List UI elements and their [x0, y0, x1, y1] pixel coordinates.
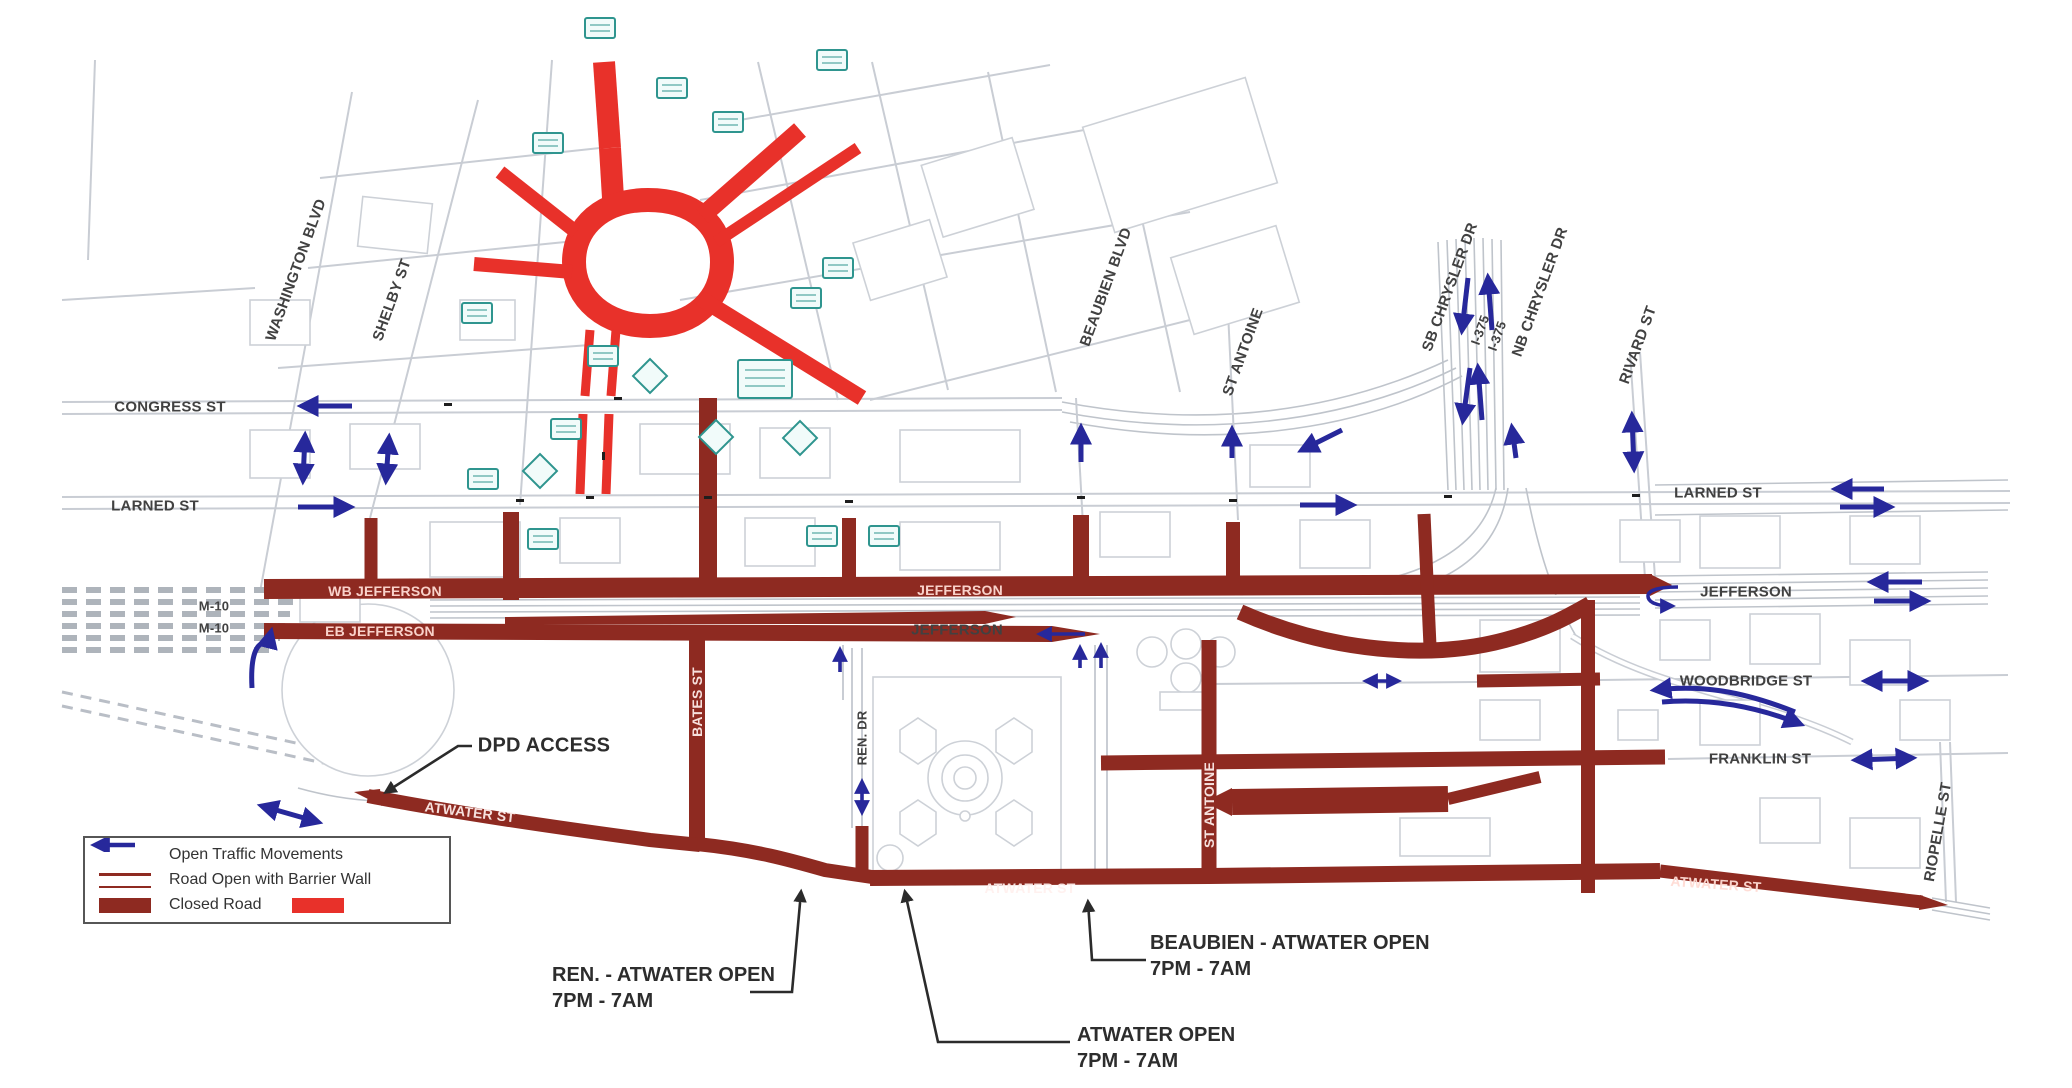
callout-line: 7PM - 7AM — [1150, 956, 1430, 982]
callout-line: BEAUBIEN - ATWATER OPEN — [1150, 930, 1430, 956]
sign-icon — [738, 360, 792, 398]
map-legend: Open Traffic Movements Road Open with Ba… — [83, 836, 451, 924]
sign-icon — [807, 526, 837, 546]
street-label-larned-st-right: LARNED ST — [1674, 485, 1762, 502]
sign-icon — [713, 112, 743, 132]
street-label-wb-jefferson: WB JEFFERSON — [328, 583, 442, 599]
street-label-larned-st-left: LARNED ST — [111, 498, 199, 515]
sign-icon — [528, 529, 558, 549]
callout-atwater-open: ATWATER OPEN 7PM - 7AM — [1077, 1022, 1235, 1074]
legend-row-barrier-wall: Road Open with Barrier Wall — [97, 871, 437, 889]
street-label-woodbridge-st: WOODBRIDGE ST — [1680, 673, 1813, 690]
street-label-congress-st: CONGRESS ST — [114, 399, 225, 416]
sign-icon — [523, 454, 557, 488]
street-label-bates-st: BATES ST — [689, 667, 705, 737]
sign-icon — [585, 18, 615, 38]
closed-road-swatch-red — [292, 898, 344, 913]
sign-icon — [791, 288, 821, 308]
legend-label: Closed Road — [169, 896, 262, 914]
street-label-atwater-center: ATWATER ST — [985, 880, 1076, 896]
closed-road-swatch-maroon — [97, 898, 153, 913]
sign-icon — [588, 346, 618, 366]
street-label-m10-b: M-10 — [199, 621, 229, 636]
callout-beaubien-atwater-open: BEAUBIEN - ATWATER OPEN 7PM - 7AM — [1150, 930, 1430, 982]
sign-icon — [462, 303, 492, 323]
legend-label: Road Open with Barrier Wall — [169, 871, 371, 889]
intersection-marks — [444, 397, 1640, 503]
callout-line: ATWATER OPEN — [1077, 1022, 1235, 1048]
barrier-wall-icon — [97, 873, 153, 888]
street-label-franklin-st: FRANKLIN ST — [1709, 751, 1811, 768]
street-label-jefferson-open: JEFFERSON — [911, 622, 1003, 639]
sign-icon — [657, 78, 687, 98]
sign-icon — [817, 50, 847, 70]
sign-icon — [468, 469, 498, 489]
callout-ren-atwater-open: REN. - ATWATER OPEN 7PM - 7AM — [552, 962, 775, 1014]
legend-row-closed-road: Closed Road — [97, 896, 437, 914]
street-label-eb-jefferson: EB JEFFERSON — [325, 623, 435, 639]
street-label-ren-dr: REN. DR — [855, 711, 870, 766]
callout-line: REN. - ATWATER OPEN — [552, 962, 775, 988]
sign-icon — [869, 526, 899, 546]
street-label-jefferson-right: JEFFERSON — [1700, 584, 1792, 601]
sign-icon — [633, 359, 667, 393]
building-footprints — [250, 78, 1950, 881]
street-label-st-antoine-lower: ST ANTOINE — [1201, 762, 1217, 848]
sign-icon — [533, 133, 563, 153]
legend-row-open-traffic: Open Traffic Movements — [97, 846, 437, 864]
sign-icon — [551, 419, 581, 439]
road-closure-map: WASHINGTON BLVD SHELBY ST CONGRESS ST LA… — [0, 0, 2072, 1088]
street-label-m10-a: M-10 — [199, 599, 229, 614]
sign-icon — [823, 258, 853, 278]
street-label-jefferson-closed: JEFFERSON — [917, 582, 1003, 598]
callout-line: 7PM - 7AM — [552, 988, 775, 1014]
map-graphic — [0, 0, 2072, 1088]
callout-line: 7PM - 7AM — [1077, 1048, 1235, 1074]
callout-dpd-access: DPD ACCESS — [478, 735, 610, 758]
legend-label: Open Traffic Movements — [169, 846, 343, 864]
